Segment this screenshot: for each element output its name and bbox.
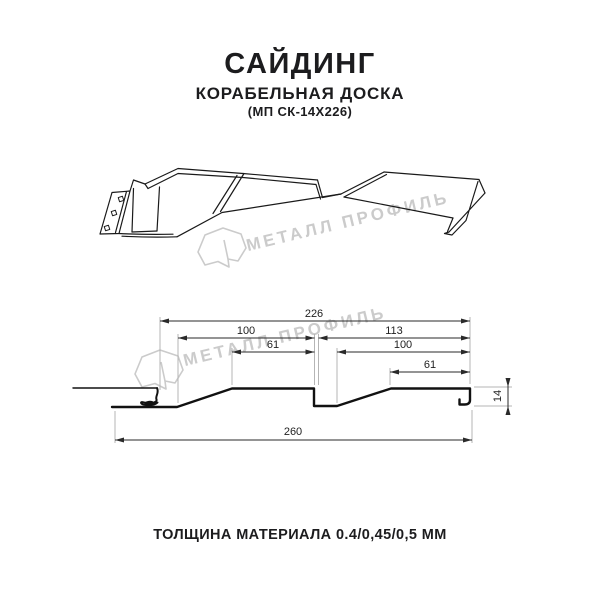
product-subtitle: КОРАБЕЛЬНАЯ ДОСКА [0, 84, 600, 104]
metall-profil-logo-icon [198, 228, 246, 267]
dim-label-flat-left: 61 [267, 339, 279, 351]
dim-label-overall-bottom: 260 [284, 426, 302, 438]
material-thickness-note: ТОЛЩИНА МАТЕРИАЛА 0.4/0,45/0,5 ММ [0, 527, 600, 543]
dim-label-flat-right: 61 [424, 359, 436, 371]
dim-label-overall-top: 226 [305, 308, 323, 320]
dim-label-height: 14 [492, 390, 504, 402]
dim-label-pitch-left: 100 [237, 325, 255, 337]
dim-label-pitch-right: 100 [394, 339, 412, 351]
cross-section-drawing [73, 388, 470, 407]
product-diagram-page: МЕТАЛЛ ПРОФИЛЬ МЕТАЛЛ ПРОФИЛЬ [0, 0, 600, 600]
siding-3d-drawing [100, 169, 485, 238]
extension-lines [115, 317, 512, 443]
page-title: САЙДИНГ [0, 48, 600, 81]
dim-label-segment-right: 113 [385, 325, 403, 337]
dimension-lines [115, 319, 511, 443]
product-model-code: (МП СК-14Х226) [0, 104, 600, 119]
metall-profil-logo-icon [135, 350, 183, 389]
